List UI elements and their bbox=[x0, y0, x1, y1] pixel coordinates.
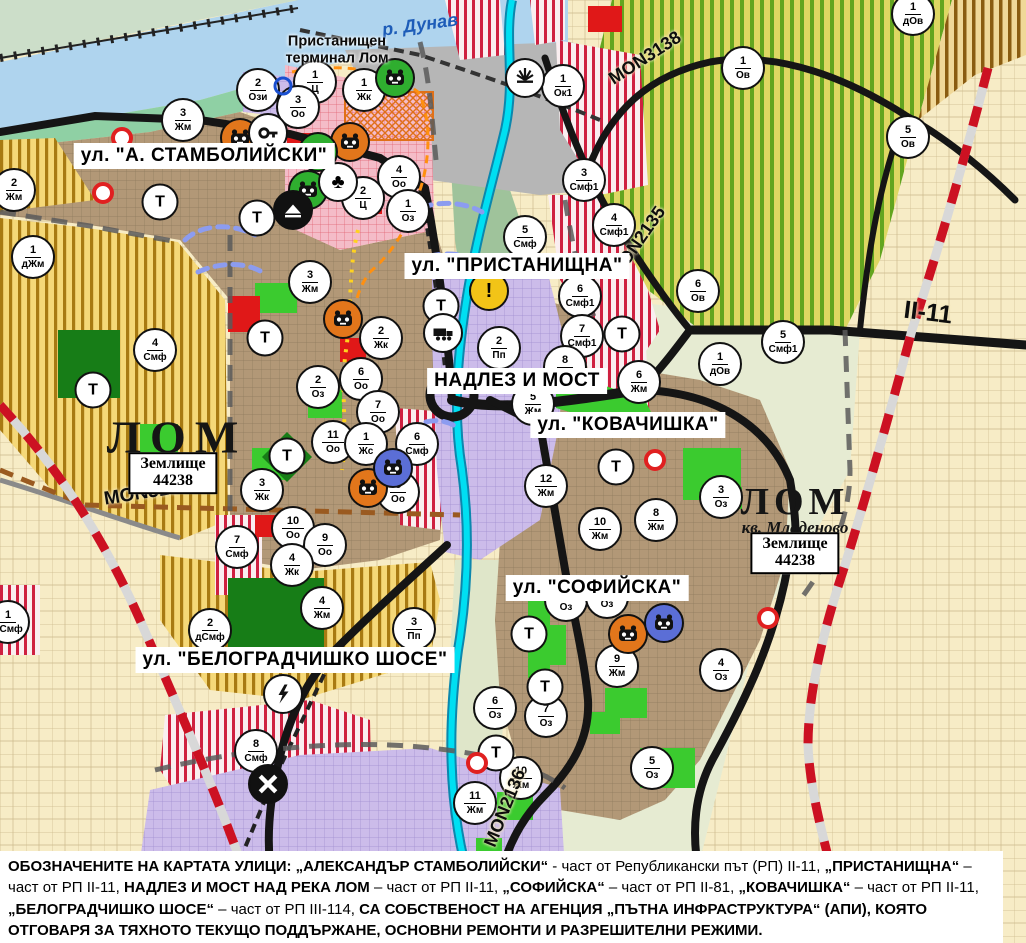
footnote-segment: – част от РП II-11, bbox=[850, 879, 978, 896]
street-label: ул. "БЕЛОГРАДЧИШКО ШОСЕ" bbox=[136, 647, 455, 673]
footnote-segment: „ПРИСТАНИЩНА“ bbox=[825, 858, 960, 875]
footnote-segment: НАДЛЕЗ И МОСТ НАД РЕКА ЛОМ bbox=[124, 879, 370, 896]
footnote-segment: „БЕЛОГРАДЧИШКО ШОСЕ“ bbox=[8, 901, 214, 918]
footnote-segment: „СОФИЙСКА“ bbox=[502, 879, 604, 896]
street-label: ул. "СОФИЙСКА" bbox=[506, 575, 689, 601]
street-label: ул. "А. СТАМБОЛИЙСКИ" bbox=[74, 143, 335, 169]
footnote-segment: – част от РП II-11, bbox=[370, 879, 503, 896]
footnote-segment: „КОВАЧИШКА“ bbox=[738, 879, 850, 896]
map-footnote: ОБОЗНАЧЕНИТЕ НА КАРТАТА УЛИЦИ: „АЛЕКСАНД… bbox=[0, 851, 1003, 943]
footnote-segment: ОБОЗНАЧЕНИТЕ НА КАРТАТА УЛИЦИ: „АЛЕКСАНД… bbox=[8, 858, 548, 875]
street-label: НАДЛЕЗ И МОСТ bbox=[427, 368, 607, 394]
street-label: ул. "КОВАЧИШКА" bbox=[530, 412, 725, 438]
street-label: ул. "ПРИСТАНИЩНА" bbox=[404, 253, 629, 279]
footnote-segment: – част от РП III-114, bbox=[214, 901, 359, 918]
zoning-map: 2Ози1Ц1Жк3Оо3Жм2Жм1дЖм4Оо2Ц1Оз1Ок11дОв1О… bbox=[0, 0, 1026, 943]
street-labels-layer: ул. "А. СТАМБОЛИЙСКИ"ул. "ПРИСТАНИЩНА"НА… bbox=[0, 0, 1026, 943]
footnote-segment: – част от РП II-81, bbox=[605, 879, 739, 896]
footnote-segment: - част от Републикански път (РП) II-11, bbox=[548, 858, 824, 875]
